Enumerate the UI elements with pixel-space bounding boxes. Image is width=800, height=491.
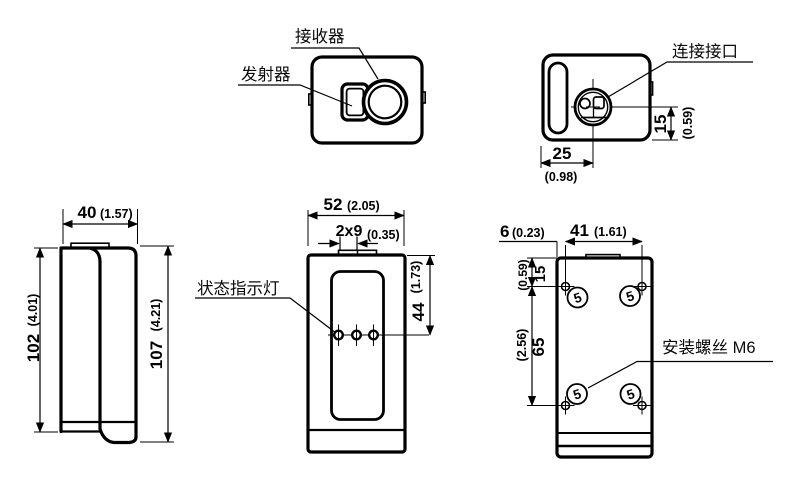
dim-52-mm: 52 [324, 195, 343, 214]
back-view: 5 5 5 5 安装螺丝 M6 6 (0.23) 41 (1.61) 15 (0… [499, 221, 773, 457]
dim-44-in: (1.73) [409, 261, 423, 294]
dim-2x9-mm: 2x9 [336, 223, 363, 240]
dim-40-in: (1.57) [100, 207, 133, 221]
dim-6-in: (0.23) [512, 226, 545, 240]
connector-label: 连接接口 [672, 42, 738, 61]
dim-15-back-mm: 15 [532, 266, 549, 283]
dim-107-in: (4.21) [149, 299, 163, 332]
dim-102-in: (4.01) [26, 294, 40, 327]
side-view: 40 (1.57) 102 (4.01) 107 (4.21) [24, 203, 174, 443]
transmitter-label: 发射器 [241, 65, 291, 84]
dim-65-in: (2.56) [515, 329, 529, 362]
dim-15-back-in: (0.59) [516, 259, 530, 290]
dim-25-mm: 25 [553, 144, 572, 163]
mounting-screw-label: 安装螺丝 M6 [662, 338, 756, 357]
front-window [332, 272, 384, 420]
top-view: 接收器 发射器 [238, 27, 425, 143]
connector-slot [549, 63, 567, 133]
dim-2x9-in: (0.35) [367, 228, 400, 242]
dim-25-in: (0.98) [545, 170, 578, 184]
receiver-label: 接收器 [295, 27, 345, 46]
technical-drawing-page: 接收器 发射器 连接接口 25 (0.98) 15 (0.59) [0, 0, 800, 491]
dim-52-in: (2.05) [347, 199, 380, 213]
dim-44-mm: 44 [409, 302, 428, 321]
front-view: 状态指示灯 52 (2.05) 2x9 (0.35) 44 (1.73) [195, 195, 435, 452]
connector-view: 连接接口 25 (0.98) 15 (0.59) [541, 42, 753, 184]
receiver-lens [364, 81, 407, 124]
dim-102-mm: 102 [24, 334, 43, 362]
dim-40-mm: 40 [78, 203, 97, 222]
device-outline-side [61, 248, 136, 443]
dimension-drawing-svg: 接收器 发射器 连接接口 25 (0.98) 15 (0.59) [0, 0, 800, 491]
dim-65-mm: 65 [529, 338, 548, 357]
dim-41-mm: 41 [570, 221, 589, 240]
dim-6-mm: 6 [500, 222, 509, 241]
status-led-label: 状态指示灯 [197, 279, 280, 298]
dim-15-mm: 15 [651, 115, 670, 134]
dim-41-in: (1.61) [594, 225, 627, 239]
dim-15-in: (0.59) [681, 107, 695, 140]
dim-107-mm: 107 [147, 341, 166, 369]
